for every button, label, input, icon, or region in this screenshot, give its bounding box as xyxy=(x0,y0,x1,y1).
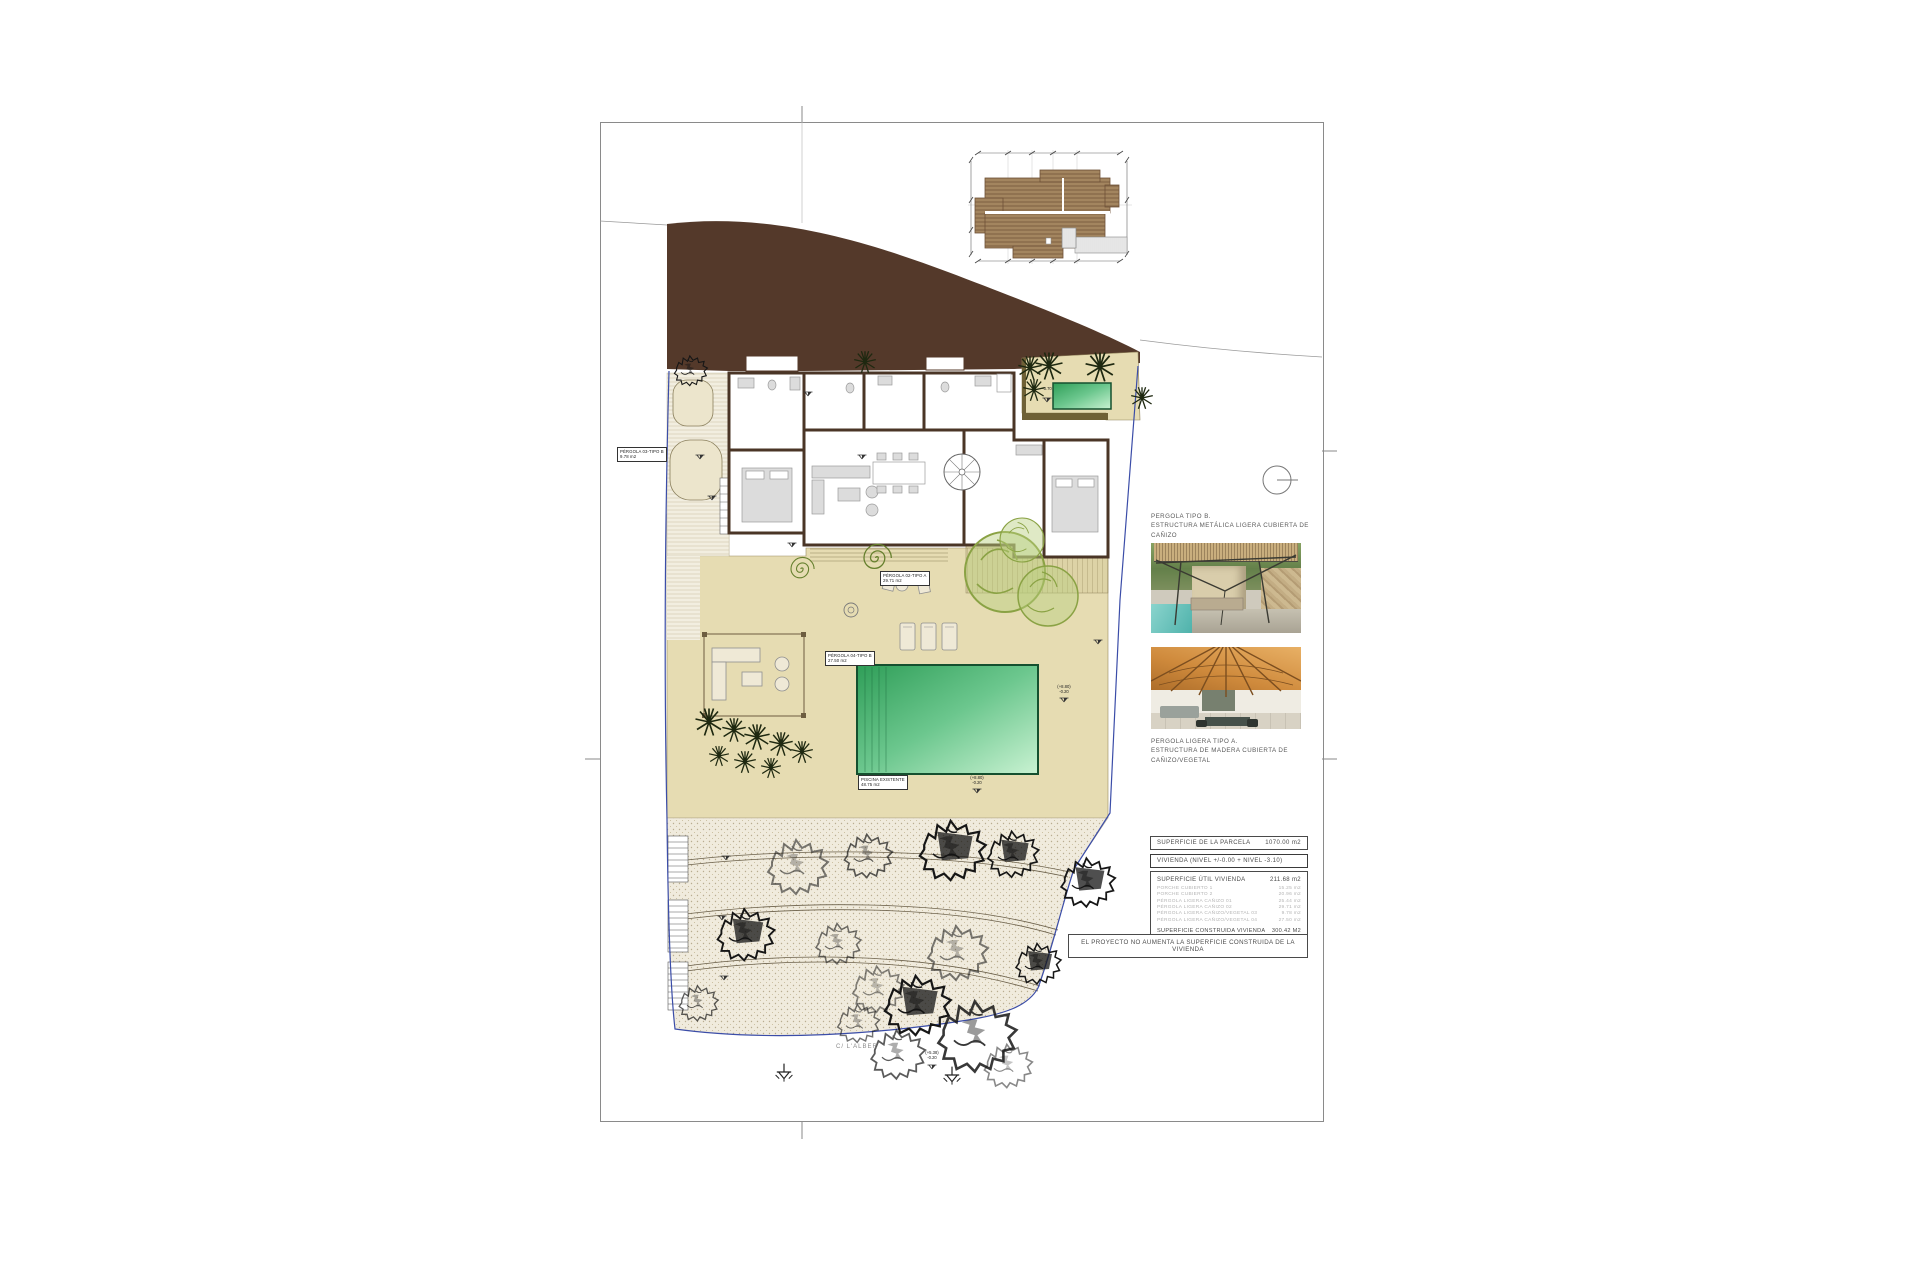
lower-garden xyxy=(667,818,1108,1036)
level-spa: -3.70 xyxy=(1033,386,1061,391)
spa-pool xyxy=(1053,383,1111,409)
road-band xyxy=(600,221,1322,371)
vivienda-detail-box: SUPERFICIE ÚTIL VIVIENDA211.68 m2 PORCHE… xyxy=(1150,871,1308,940)
level-pool-right: (+8.80)-0.20 xyxy=(1050,684,1078,694)
spiral-stair xyxy=(944,454,980,490)
site-plan-drawing xyxy=(0,0,1920,1280)
photo1-caption: PERGOLA TIPO B. ESTRUCTURA METÁLICA LIGE… xyxy=(1151,512,1326,540)
main-pool xyxy=(857,665,1038,774)
project-note-banner: EL PROYECTO NO AUMENTA LA SUPERFICIE CON… xyxy=(1068,934,1308,958)
level-pool-bottom: (+8.80)-0.20 xyxy=(963,775,991,785)
site-plan-sheet-page: { "colors": { "roadway_brown": "#54392a"… xyxy=(0,0,1920,1280)
label-piscina-existente: PISCINA EXISTENTE48.75 m2 xyxy=(858,775,908,790)
label-pergola-04: PÉRGOLA 04-TIPO B27.50 m2 xyxy=(825,651,875,666)
level-street: (+5.38)-0.20 xyxy=(918,1050,946,1060)
table-row: PÉRGOLA LIGERA CAÑIZO/VEGETAL 0427.50 m2 xyxy=(1157,918,1301,924)
street-label: C/ L'ALBER xyxy=(836,1044,878,1050)
roof-key-plan xyxy=(968,150,1132,264)
section-circle-symbol xyxy=(1263,466,1298,494)
util-row: SUPERFICIE ÚTIL VIVIENDA211.68 m2 xyxy=(1157,875,1301,886)
photo-pergola-tipo-a xyxy=(1151,647,1301,729)
photo2-beams xyxy=(1151,647,1301,729)
label-pergola-03: PÉRGOLA 03-TIPO B9.78 m2 xyxy=(617,447,667,462)
photo-pergola-tipo-b xyxy=(1151,543,1301,633)
vivienda-header-row: VIVIENDA (NIVEL +/-0.00 + NIVEL -3.10) xyxy=(1150,854,1308,868)
photo1-pergola-frame xyxy=(1151,543,1301,633)
label-pergola-02: PÉRGOLA 02-TIPO A29.71 m2 xyxy=(880,571,930,586)
surface-area-table: SUPERFICIE DE LA PARCELA1070.00 m2 VIVIE… xyxy=(1150,836,1308,940)
photo2-caption: PERGOLA LIGERA TIPO A. ESTRUCTURA DE MAD… xyxy=(1151,737,1336,765)
parcela-row: SUPERFICIE DE LA PARCELA1070.00 m2 xyxy=(1150,836,1308,850)
